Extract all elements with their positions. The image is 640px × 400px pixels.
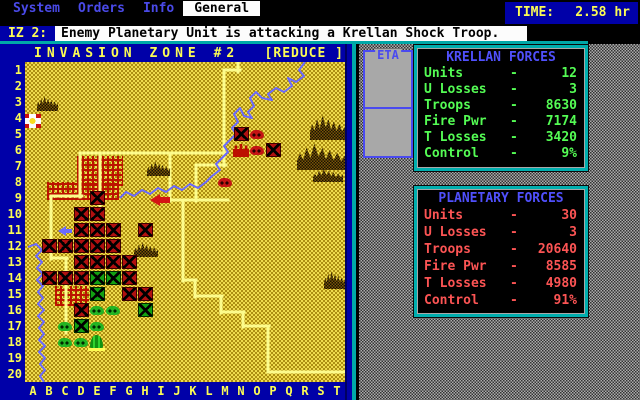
reduce-button[interactable]: [REDUCE ] (265, 46, 344, 61)
map-edge-line (345, 44, 347, 400)
unit-red-square-E13[interactable] (90, 255, 105, 269)
menu-item-general[interactable]: General (183, 1, 260, 16)
row-label-4: 4 (0, 110, 22, 126)
row-label-11: 11 (0, 222, 22, 238)
unit-red-square-H15[interactable] (138, 287, 153, 301)
row-label-8: 8 (0, 174, 22, 190)
stat-row-control: Control-91% (424, 292, 578, 309)
unit-green-tank-E17[interactable] (90, 322, 104, 331)
river (28, 244, 45, 382)
row-labels: 1234567891011121314151617181920 (0, 62, 23, 382)
unit-red-square-G14[interactable] (122, 271, 137, 285)
stat-row-t-losses: T Losses-4980 (424, 275, 578, 292)
unit-red-square-P6[interactable] (266, 143, 281, 157)
unit-red-square-D10[interactable] (74, 207, 89, 221)
unit-red-tank-O6[interactable] (250, 146, 264, 155)
unit-green-square-E14[interactable] (90, 271, 105, 285)
row-label-20: 20 (0, 366, 22, 382)
unit-red-square-B12[interactable] (42, 239, 57, 253)
unit-red-square-D14[interactable] (74, 271, 89, 285)
unit-red-tank-M8[interactable] (218, 178, 232, 187)
unit-red-square-B14[interactable] (42, 271, 57, 285)
unit-green-square-D17[interactable] (74, 319, 89, 333)
col-label-F: F (105, 384, 121, 399)
unit-red-square-G13[interactable] (122, 255, 137, 269)
stat-row-troops: Troops-8630 (424, 98, 578, 114)
unit-red-square-C14[interactable] (58, 271, 73, 285)
row-label-18: 18 (0, 334, 22, 350)
river (120, 62, 305, 198)
unit-red-square-E12[interactable] (90, 239, 105, 253)
stat-row-control: Control-9% (424, 146, 578, 162)
planetary-forces-panel: PLANETARY FORCES Units-30U Losses-3Troop… (413, 185, 589, 318)
col-label-C: C (57, 384, 73, 399)
unit-green-tank-C18[interactable] (58, 338, 72, 347)
menu-bar: SystemOrdersInfoGeneral TIME: 2.58 hr (0, 0, 640, 26)
menu-item-system[interactable]: System (13, 1, 60, 16)
unit-red-square-F11[interactable] (106, 223, 121, 237)
stat-row-units: Units-12 (424, 66, 578, 82)
unit-red-square-N5[interactable] (234, 127, 249, 141)
invasion-zone-badge: IZ 2: (0, 26, 55, 41)
column-labels: ABCDEFGHIJKLMNOPQRST (25, 384, 345, 399)
unit-green-square-F14[interactable] (106, 271, 121, 285)
menu-item-info[interactable]: Info (143, 1, 174, 16)
unit-green-tank-C17[interactable] (58, 322, 72, 331)
time-display: TIME: 2.58 hr (505, 2, 638, 24)
col-label-K: K (185, 384, 201, 399)
stat-row-t-losses: T Losses-3420 (424, 130, 578, 146)
col-label-P: P (265, 384, 281, 399)
game-screen: SystemOrdersInfoGeneral TIME: 2.58 hr IZ… (0, 0, 640, 400)
eta-divider (365, 107, 411, 109)
unit-red-tank-O5[interactable] (250, 130, 264, 139)
menu-items: SystemOrdersInfoGeneral (0, 0, 260, 19)
unit-fort-N6[interactable] (233, 144, 249, 157)
unit-red-arrow-I9[interactable] (150, 194, 170, 206)
planetary-panel-rows: Units-30U Losses-3Troops-20640Fire Pwr-8… (424, 207, 578, 309)
col-label-D: D (73, 384, 89, 399)
unit-red-square-G15[interactable] (122, 287, 137, 301)
row-label-5: 5 (0, 126, 22, 142)
stat-row-fire-pwr: Fire Pwr-8585 (424, 258, 578, 275)
row-label-10: 10 (0, 206, 22, 222)
col-label-M: M (217, 384, 233, 399)
row-label-15: 15 (0, 286, 22, 302)
stat-row-u-losses: U Losses-3 (424, 82, 578, 98)
row-label-6: 6 (0, 142, 22, 158)
col-label-N: N (233, 384, 249, 399)
unit-red-square-E11[interactable] (90, 223, 105, 237)
col-label-O: O (249, 384, 265, 399)
unit-green-tank-E16[interactable] (90, 306, 104, 315)
unit-green-tank-F16[interactable] (106, 306, 120, 315)
roads-and-rivers-layer (25, 62, 345, 382)
eta-label: ETA (375, 49, 401, 62)
stat-row-fire-pwr: Fire Pwr-7174 (424, 114, 578, 130)
row-label-9: 9 (0, 190, 22, 206)
unit-flag-A4[interactable] (25, 114, 41, 128)
col-label-J: J (169, 384, 185, 399)
planetary-panel-title: PLANETARY FORCES (424, 191, 578, 207)
unit-red-square-D13[interactable] (74, 255, 89, 269)
unit-red-square-D16[interactable] (74, 303, 89, 317)
time-label: TIME: (515, 2, 554, 24)
unit-red-square-E10[interactable] (90, 207, 105, 221)
row-label-2: 2 (0, 78, 22, 94)
row-label-12: 12 (0, 238, 22, 254)
unit-green-tank-D18[interactable] (74, 338, 88, 347)
krellan-panel-title: KRELLAN FORCES (424, 50, 578, 66)
unit-red-square-E9[interactable] (90, 191, 105, 205)
map-title-bar: INVASION ZONE #2 [REDUCE ] (0, 46, 352, 61)
col-label-E: E (89, 384, 105, 399)
col-label-R: R (297, 384, 313, 399)
col-label-B: B (41, 384, 57, 399)
unit-blue-arrow-C11[interactable] (58, 226, 72, 236)
krellan-forces-panel: KRELLAN FORCES Units-12U Losses-3Troops-… (413, 44, 589, 172)
krellan-panel-rows: Units-12U Losses-3Troops-8630Fire Pwr-71… (424, 66, 578, 162)
unit-green-square-E15[interactable] (90, 287, 105, 301)
unit-red-square-C12[interactable] (58, 239, 73, 253)
row-label-7: 7 (0, 158, 22, 174)
unit-red-square-F13[interactable] (106, 255, 121, 269)
unit-red-square-F12[interactable] (106, 239, 121, 253)
row-label-13: 13 (0, 254, 22, 270)
col-label-G: G (121, 384, 137, 399)
col-label-L: L (201, 384, 217, 399)
stat-row-u-losses: U Losses-3 (424, 224, 578, 241)
col-label-H: H (137, 384, 153, 399)
row-label-16: 16 (0, 302, 22, 318)
menu-item-orders[interactable]: Orders (78, 1, 125, 16)
col-label-A: A (25, 384, 41, 399)
col-label-S: S (313, 384, 329, 399)
col-label-T: T (329, 384, 345, 399)
row-label-17: 17 (0, 318, 22, 334)
eta-panel: ETA (363, 50, 413, 158)
time-value: 2.58 hr (575, 2, 630, 24)
unit-red-square-D11[interactable] (74, 223, 89, 237)
row-label-3: 3 (0, 94, 22, 110)
stat-row-troops: Troops-20640 (424, 241, 578, 258)
row-label-14: 14 (0, 270, 22, 286)
unit-red-square-H11[interactable] (138, 223, 153, 237)
unit-green-square-H16[interactable] (138, 303, 153, 317)
unit-red-square-D12[interactable] (74, 239, 89, 253)
invasion-zone-map[interactable] (25, 62, 345, 382)
stat-row-units: Units-30 (424, 207, 578, 224)
col-label-Q: Q (281, 384, 297, 399)
map-title: INVASION ZONE #2 (34, 46, 239, 61)
status-message: Enemy Planetary Unit is attacking a Krel… (55, 26, 527, 41)
col-label-I: I (153, 384, 169, 399)
row-label-19: 19 (0, 350, 22, 366)
row-label-1: 1 (0, 62, 22, 78)
